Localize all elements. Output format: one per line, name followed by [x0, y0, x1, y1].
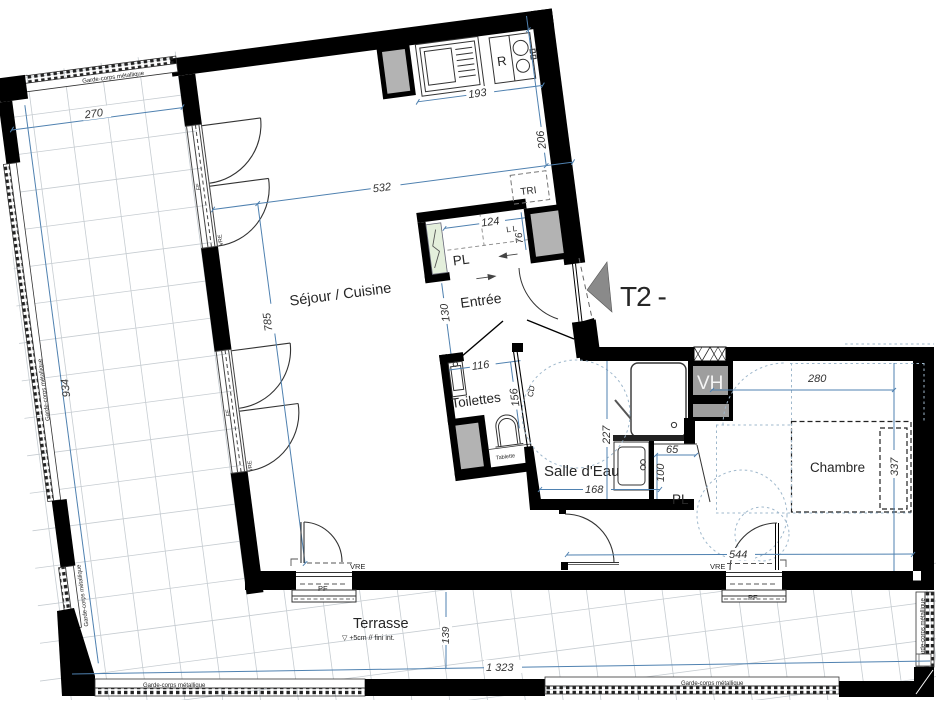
svg-text:1 323: 1 323: [486, 662, 514, 674]
svg-text:PL: PL: [672, 492, 689, 507]
svg-text:FE: FE: [225, 408, 232, 416]
svg-text:VH: VH: [697, 373, 723, 394]
svg-text:337: 337: [889, 457, 901, 476]
svg-text:Garde-corps métallique: Garde-corps métallique: [143, 683, 206, 689]
svg-text:FE: FE: [196, 182, 203, 190]
svg-text:280: 280: [807, 373, 827, 385]
svg-text:TRI: TRI: [520, 185, 537, 198]
svg-text:65: 65: [666, 444, 679, 456]
svg-text:227: 227: [601, 425, 613, 445]
svg-text:PF: PF: [748, 593, 758, 602]
svg-text:▽ +5cm // fini int.: ▽ +5cm // fini int.: [342, 635, 395, 642]
svg-text:L L: L L: [506, 224, 518, 234]
svg-text:270: 270: [83, 107, 105, 122]
svg-text:100: 100: [655, 463, 667, 482]
svg-text:Terrasse: Terrasse: [353, 616, 409, 632]
svg-text:124: 124: [480, 215, 500, 229]
svg-text:PL: PL: [452, 251, 471, 268]
svg-text:139: 139: [440, 626, 452, 644]
svg-text:Salle d'Eau: Salle d'Eau: [544, 463, 619, 480]
svg-text:785: 785: [261, 311, 275, 332]
svg-text:PF: PF: [318, 584, 328, 593]
svg-text:T2 -: T2 -: [620, 281, 666, 312]
svg-text:VRE: VRE: [710, 562, 725, 571]
svg-text:76: 76: [514, 231, 526, 244]
svg-text:193: 193: [468, 87, 489, 101]
svg-text:168: 168: [585, 484, 604, 496]
svg-text:R: R: [496, 53, 507, 69]
svg-text:130: 130: [438, 302, 452, 323]
svg-text:116: 116: [471, 359, 491, 373]
svg-text:Chambre: Chambre: [810, 460, 865, 475]
svg-text:934: 934: [59, 378, 73, 398]
svg-text:544: 544: [729, 549, 747, 561]
svg-text:VRE: VRE: [350, 562, 365, 571]
svg-text:Garde-corps métallique: Garde-corps métallique: [921, 597, 927, 660]
svg-text:Garde-corps métallique: Garde-corps métallique: [681, 681, 744, 687]
svg-text:532: 532: [372, 181, 392, 195]
